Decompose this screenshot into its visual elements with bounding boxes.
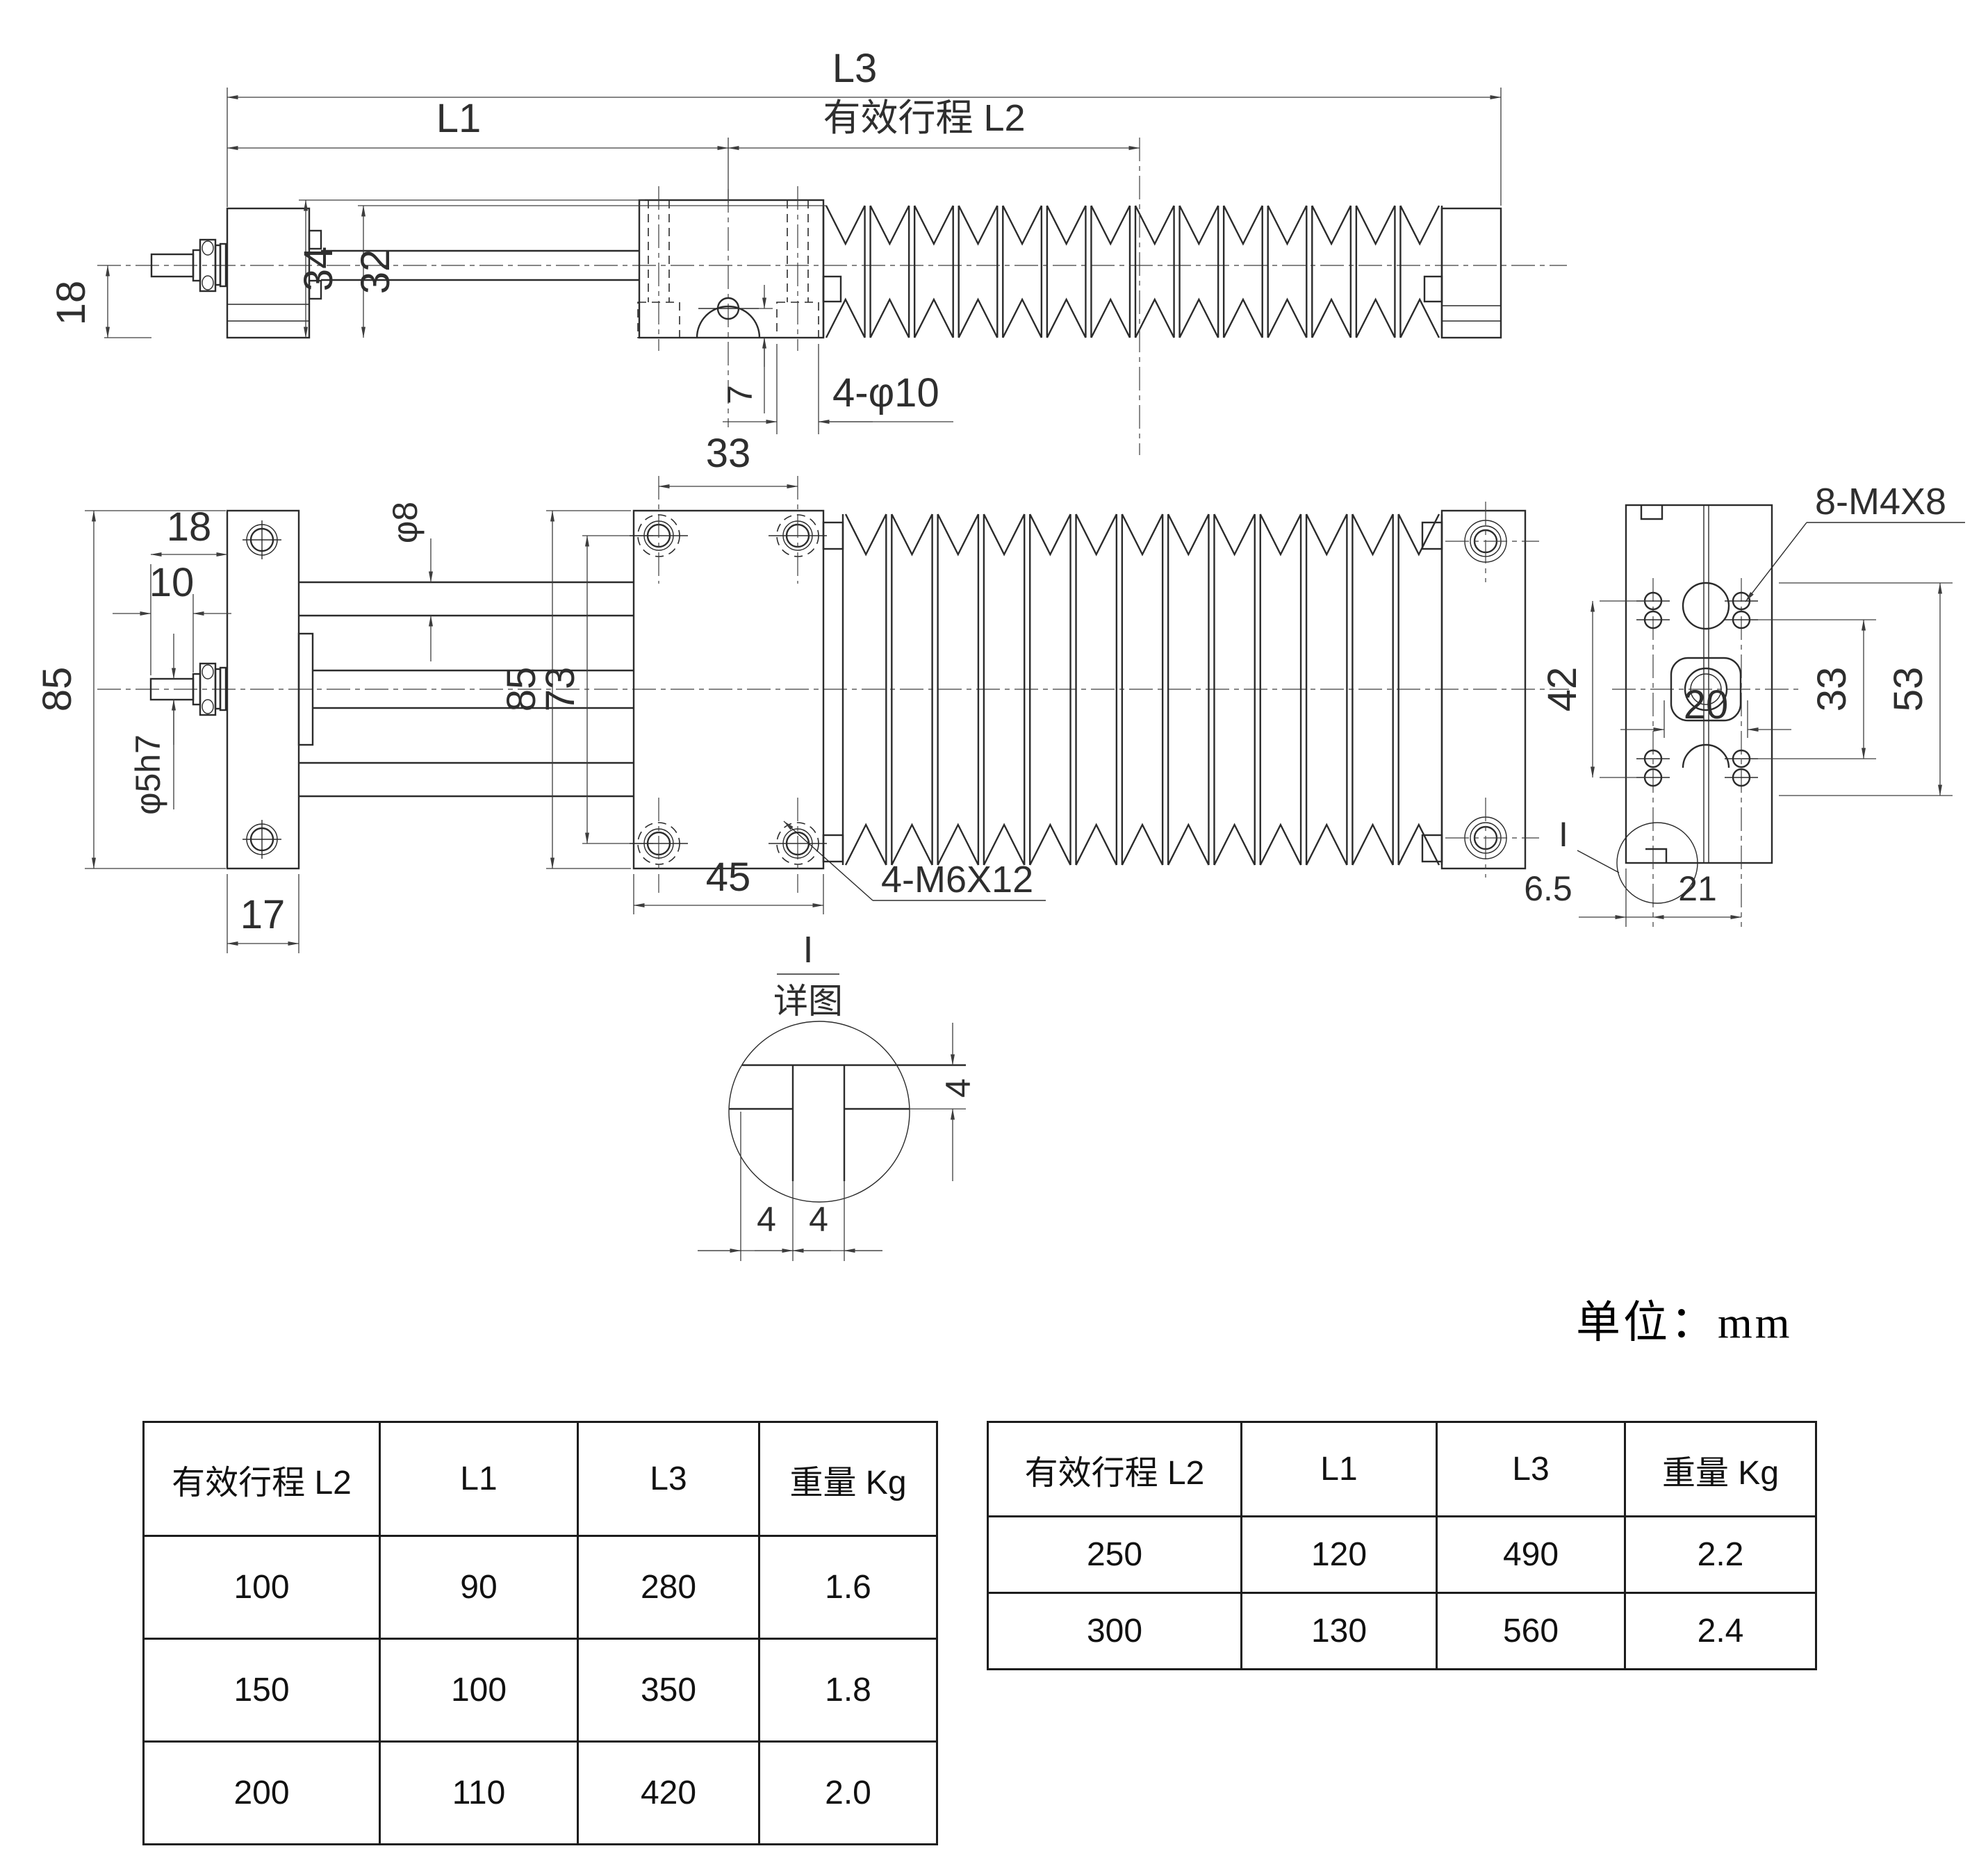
col-header: L3 (578, 1422, 759, 1536)
spec-cell: 130 (1242, 1593, 1437, 1670)
dim-10: 10 (149, 560, 195, 605)
dim-42: 42 (1540, 667, 1585, 712)
plan-view: 85 18 10 φ5h7 (35, 431, 1569, 953)
col-header: 重量 Kg (759, 1422, 937, 1536)
dim-18-plan: 18 (167, 504, 212, 550)
side-view: L3 L1 有效行程 L2 18 34 32 7 4-φ10 (49, 46, 1567, 455)
spec-cell: 2.4 (1625, 1593, 1816, 1670)
spec-cell: 200 (144, 1742, 380, 1845)
spec-table-right: 有效行程 L2L1L3重量 Kg2501204902.23001305602.4 (987, 1421, 1817, 1670)
dim-85-left: 85 (35, 667, 80, 712)
spec-cell: 420 (578, 1742, 759, 1845)
detail-title-ref: I (803, 929, 813, 971)
detail-view: I 详图 4 4 4 (698, 929, 978, 1261)
table-row: 2001104202.0 (144, 1742, 937, 1845)
end-view: 8-M4X8 42 33 53 20 I 6.5 21 (1524, 481, 1965, 927)
dim-l1: L1 (436, 96, 482, 141)
col-header: 有效行程 L2 (144, 1422, 380, 1536)
dim-33-end: 33 (1809, 667, 1855, 712)
dim-6-5: 6.5 (1524, 869, 1572, 908)
dim-4-depth: 4 (939, 1078, 978, 1098)
spec-cell: 90 (380, 1536, 578, 1639)
dim-45: 45 (706, 855, 751, 900)
col-header: L1 (1242, 1422, 1437, 1517)
spec-cell: 300 (988, 1593, 1242, 1670)
dim-53: 53 (1886, 667, 1931, 712)
dim-17: 17 (240, 892, 286, 937)
unit-note: 单位：mm (1576, 1287, 1793, 1351)
col-header: 有效行程 L2 (988, 1422, 1242, 1517)
table-row: 3001305602.4 (988, 1593, 1816, 1670)
spec-cell: 120 (1242, 1517, 1437, 1593)
spec-cell: 350 (578, 1639, 759, 1742)
col-header: 重量 Kg (1625, 1422, 1816, 1517)
table-holes (630, 476, 827, 893)
dim-20: 20 (1684, 682, 1729, 727)
dim-l2-stroke: 有效行程 L2 (823, 97, 1025, 139)
spec-cell: 150 (144, 1639, 380, 1742)
dim-33-plan: 33 (706, 431, 751, 476)
dim-phi8: φ8 (386, 502, 425, 543)
dim-4-phi10: 4-φ10 (832, 370, 939, 415)
table-row: 2501204902.2 (988, 1517, 1816, 1593)
spec-cell: 100 (144, 1536, 380, 1639)
spec-cell: 110 (380, 1742, 578, 1845)
dim-21: 21 (1678, 869, 1717, 908)
dim-34: 34 (296, 247, 341, 292)
spec-cell: 1.6 (759, 1536, 937, 1639)
dim-18-side: 18 (49, 281, 94, 326)
spec-cell: 560 (1437, 1593, 1625, 1670)
dim-4-left: 4 (757, 1200, 776, 1239)
spec-cell: 1.8 (759, 1639, 937, 1742)
dim-phi5h7: φ5h7 (129, 734, 167, 815)
spec-cell: 490 (1437, 1517, 1625, 1593)
dim-73: 73 (538, 667, 583, 712)
spec-cell: 250 (988, 1517, 1242, 1593)
dim-7: 7 (721, 385, 759, 404)
dim-4-right: 4 (809, 1200, 828, 1239)
spec-cell: 2.2 (1625, 1517, 1816, 1593)
dim-l3: L3 (832, 46, 878, 91)
col-header: L1 (380, 1422, 578, 1536)
dim-8-m4x8: 8-M4X8 (1815, 481, 1946, 522)
dim-32: 32 (353, 249, 398, 295)
col-header: L3 (1437, 1422, 1625, 1517)
detail-ref-i: I (1559, 815, 1568, 854)
spec-cell: 100 (380, 1639, 578, 1742)
table-row: 1501003501.8 (144, 1639, 937, 1742)
spec-cell: 280 (578, 1536, 759, 1639)
detail-title: 详图 (773, 982, 843, 1021)
table-row: 100902801.6 (144, 1536, 937, 1639)
spec-table-left: 有效行程 L2L1L3重量 Kg100902801.61501003501.82… (142, 1421, 938, 1845)
dim-4-m6x12: 4-M6X12 (881, 859, 1033, 900)
spec-cell: 2.0 (759, 1742, 937, 1845)
